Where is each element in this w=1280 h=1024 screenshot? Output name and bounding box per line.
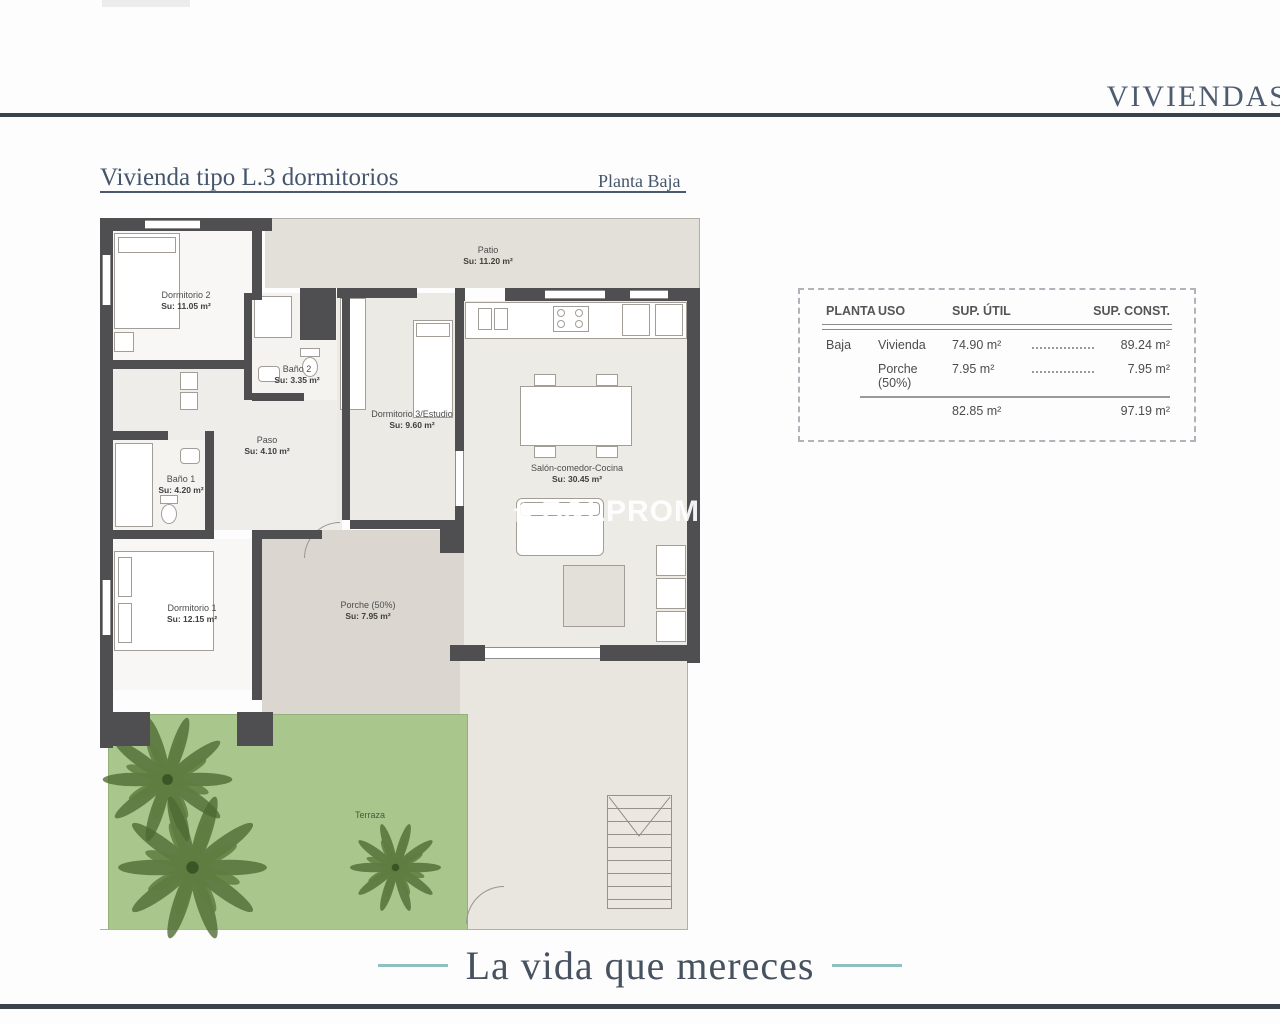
room-name: Dormitorio 3/Estudio	[371, 409, 453, 419]
washbasin-symbol	[180, 448, 200, 464]
footer-rule	[0, 1004, 1280, 1009]
table-total-rule	[860, 396, 1170, 398]
cell-planta: Baja	[826, 338, 878, 352]
room-area: Su: 9.60 m²	[371, 420, 453, 431]
wall	[100, 712, 150, 746]
chair-symbol	[534, 446, 556, 458]
shower-symbol	[254, 296, 292, 338]
room-area: Su: 30.45 m²	[531, 474, 623, 485]
cell-sup-util: 74.90 m²	[952, 338, 1030, 352]
cell-sup-util: 7.95 m²	[952, 362, 1030, 376]
room-area: Su: 4.20 m²	[158, 485, 203, 496]
cell-sup-const: 89.24 m²	[1100, 338, 1170, 352]
door-opening	[455, 451, 464, 506]
wall	[252, 393, 304, 401]
plan-line	[699, 218, 700, 288]
wall	[600, 645, 687, 661]
room-name: Baño 2	[283, 364, 312, 374]
tagline-right-line	[832, 964, 902, 967]
spacer	[1032, 314, 1087, 315]
dot-leader	[1032, 370, 1094, 373]
total-sup-util: 82.85 m²	[952, 404, 1030, 418]
wall	[252, 530, 262, 700]
room-area: Su: 12.15 m²	[167, 614, 217, 625]
table-header-row: PLANTA USO SUP. ÚTIL SUP. CONST.	[826, 304, 1170, 318]
spacer	[1032, 414, 1094, 415]
room-name: Porche (50%)	[340, 600, 395, 610]
wall-shaft	[300, 288, 336, 340]
toilet-tank-symbol	[300, 348, 320, 357]
rug-symbol	[563, 565, 625, 627]
tagline-left-line	[378, 964, 448, 967]
col-sup-util: SUP. ÚTIL	[952, 304, 1030, 318]
wall	[113, 360, 252, 369]
watermark-text: B&LPROM	[541, 495, 700, 529]
dining-table-symbol	[520, 386, 632, 446]
watermark: B&LPROM	[512, 486, 700, 538]
window	[102, 255, 111, 305]
room-area: Su: 4.10 m²	[244, 446, 289, 457]
surface-table: PLANTA USO SUP. ÚTIL SUP. CONST. Baja Vi…	[798, 288, 1196, 442]
window	[630, 290, 668, 299]
title-underline	[100, 191, 686, 193]
plan-title: Vivienda tipo L.3 dormitorios	[100, 164, 398, 192]
total-sup-const: 97.19 m²	[1100, 404, 1170, 418]
wall	[205, 431, 214, 530]
room-name: Dormitorio 2	[161, 290, 210, 300]
window	[545, 290, 605, 299]
wall	[455, 288, 465, 301]
palm-tree-icon	[348, 820, 443, 915]
wall	[455, 506, 464, 529]
table-row: Baja Vivienda 74.90 m² 89.24 m²	[826, 338, 1170, 352]
kitchen-sink-symbol	[494, 308, 508, 330]
wall	[440, 529, 464, 553]
window	[102, 580, 111, 635]
label-paso: Paso Su: 4.10 m²	[244, 434, 289, 458]
chair-symbol	[596, 374, 618, 386]
pillow-symbol	[118, 237, 176, 253]
wall	[350, 520, 464, 529]
wall	[455, 301, 464, 451]
pillow-symbol	[118, 557, 132, 597]
burner-symbol	[575, 320, 583, 328]
toilet-symbol	[161, 504, 177, 524]
col-sup-const: SUP. CONST.	[1093, 304, 1170, 318]
room-area: Su: 11.20 m²	[463, 256, 513, 267]
wall	[100, 530, 214, 539]
label-dormitorio-1: Dormitorio 1 Su: 12.15 m²	[167, 602, 217, 626]
brochure-page: VIVIENDAS Vivienda tipo L.3 dormitorios …	[0, 0, 1280, 1024]
room-name: Terraza	[355, 810, 385, 820]
oven-symbol	[622, 304, 650, 336]
label-bano-1: Baño 1 Su: 4.20 m²	[158, 473, 203, 497]
pillow-symbol	[118, 603, 132, 643]
pillow-symbol	[416, 323, 450, 337]
house-icon	[512, 490, 535, 534]
bathtub-symbol	[115, 443, 153, 527]
wall	[342, 293, 350, 520]
wall	[252, 218, 262, 300]
wall	[262, 530, 322, 539]
room-area: Su: 11.05 m²	[161, 301, 211, 312]
burner-symbol	[557, 309, 565, 317]
room-area: Su: 7.95 m²	[340, 611, 395, 622]
table-header-rule	[822, 324, 1172, 330]
chair-symbol	[534, 374, 556, 386]
label-terraza: Terraza	[355, 809, 385, 821]
stairs-direction-arrow	[608, 796, 671, 838]
label-bano-2: Baño 2 Su: 3.35 m²	[274, 363, 319, 387]
washer-symbol	[180, 372, 198, 390]
wall	[687, 288, 700, 663]
room-name: Baño 1	[167, 474, 196, 484]
label-patio: Patio Su: 11.20 m²	[463, 244, 513, 268]
plan-line	[687, 661, 688, 930]
cell-uso: Porche (50%)	[878, 362, 952, 390]
label-porche: Porche (50%) Su: 7.95 m²	[340, 599, 395, 623]
cell-uso: Vivienda	[878, 338, 952, 352]
room-name: Paso	[257, 435, 278, 445]
burner-symbol	[575, 309, 583, 317]
wall	[244, 293, 252, 400]
tagline: La vida que mereces	[466, 942, 815, 989]
footer-tagline-row: La vida que mereces	[0, 942, 1280, 989]
label-dormitorio-2: Dormitorio 2 Su: 11.05 m²	[161, 289, 211, 313]
room-name: Dormitorio 1	[167, 603, 216, 613]
col-planta: PLANTA	[826, 304, 878, 318]
table-totals-row: 82.85 m² 97.19 m²	[826, 404, 1170, 418]
burner-symbol	[557, 320, 565, 328]
washer-symbol	[180, 392, 198, 410]
partial-logo	[102, 0, 190, 7]
sliding-door	[485, 647, 600, 659]
label-dormitorio-3: Dormitorio 3/Estudio Su: 9.60 m²	[371, 408, 453, 432]
chair-symbol	[596, 446, 618, 458]
floor-label: Planta Baja	[598, 171, 680, 192]
brand-wordmark: VIVIENDAS	[1107, 80, 1280, 114]
label-salon: Salón-comedor-Cocina Su: 30.45 m²	[531, 462, 623, 486]
fridge-symbol	[655, 304, 683, 336]
shelf-symbol	[656, 545, 686, 642]
window	[145, 220, 200, 229]
wall	[113, 431, 168, 440]
cell-sup-const: 7.95 m²	[1100, 362, 1170, 376]
palm-tree-icon	[115, 790, 270, 945]
nightstand-symbol	[114, 332, 134, 352]
kitchen-sink-symbol	[478, 308, 492, 330]
wall	[237, 712, 273, 746]
room-name: Salón-comedor-Cocina	[531, 463, 623, 473]
dot-leader	[1032, 346, 1094, 349]
stairs-symbol	[607, 795, 672, 909]
header-rule	[0, 113, 1280, 117]
col-uso: USO	[878, 304, 952, 318]
room-name: Patio	[478, 245, 499, 255]
table-row: Porche (50%) 7.95 m² 7.95 m²	[826, 362, 1170, 390]
plan-line	[265, 218, 700, 219]
wall	[450, 645, 485, 661]
room-area: Su: 3.35 m²	[274, 375, 319, 386]
